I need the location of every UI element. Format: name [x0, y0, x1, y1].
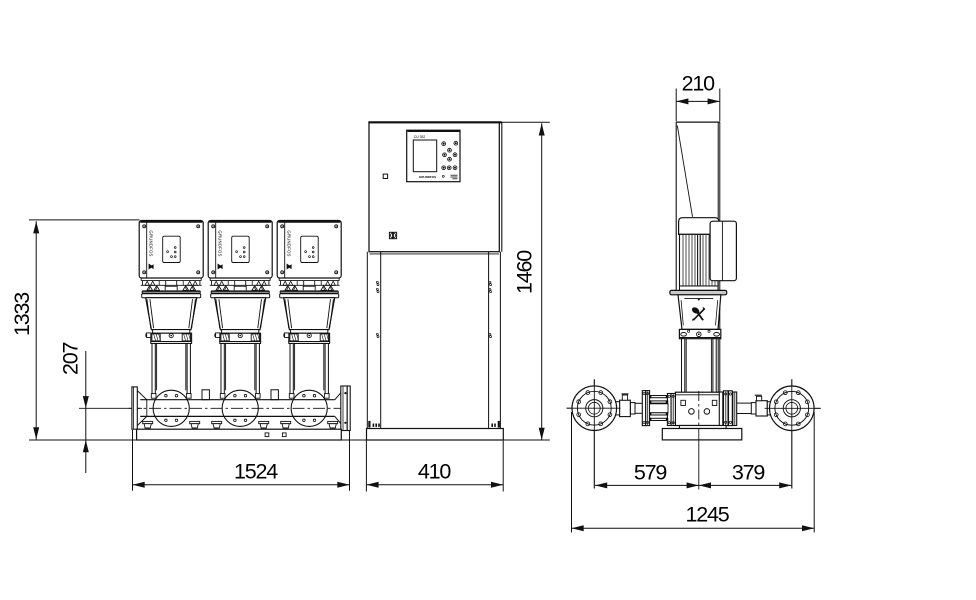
svg-text:1245: 1245	[685, 503, 729, 527]
svg-text:1333: 1333	[10, 292, 34, 336]
svg-text:CU 352: CU 352	[414, 135, 426, 139]
svg-text:379: 379	[732, 461, 765, 485]
svg-text:207: 207	[59, 343, 83, 376]
svg-text:410: 410	[418, 460, 452, 484]
svg-text:GRUNDFOS: GRUNDFOS	[419, 175, 436, 179]
svg-text:210: 210	[682, 72, 716, 96]
svg-text:1460: 1460	[513, 250, 537, 294]
svg-text:579: 579	[634, 461, 667, 485]
svg-text:1524: 1524	[234, 460, 278, 484]
